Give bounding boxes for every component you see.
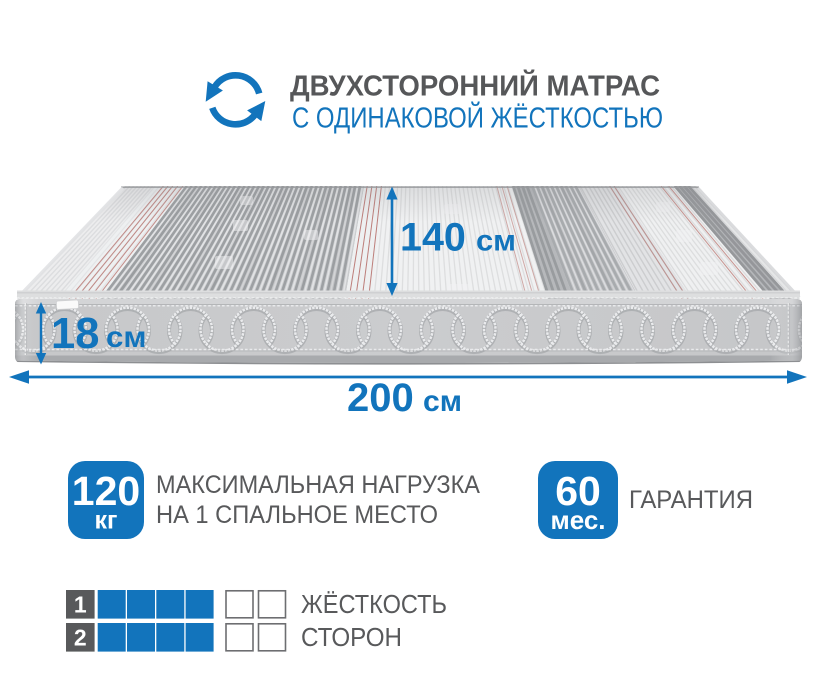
svg-text:140: 140: [400, 216, 466, 260]
svg-text:18: 18: [51, 310, 99, 358]
svg-text:см: см: [476, 225, 516, 258]
svg-text:НА 1 СПАЛЬНОЕ МЕСТО: НА 1 СПАЛЬНОЕ МЕСТО: [156, 501, 438, 529]
svg-text:СТОРОН: СТОРОН: [301, 622, 402, 652]
svg-text:1: 1: [74, 592, 87, 618]
svg-text:200: 200: [347, 376, 414, 420]
svg-text:мес.: мес.: [550, 505, 605, 535]
svg-text:ЖЁСТКОСТЬ: ЖЁСТКОСТЬ: [301, 589, 447, 619]
svg-text:ГАРАНТИЯ: ГАРАНТИЯ: [629, 486, 753, 514]
svg-text:ДВУХСТОРОННИЙ МАТРАС: ДВУХСТОРОННИЙ МАТРАС: [290, 69, 660, 103]
svg-text:см: см: [423, 385, 462, 418]
svg-text:С ОДИНАКОВОЙ ЖЁСТКОСТЬЮ: С ОДИНАКОВОЙ ЖЁСТКОСТЬЮ: [292, 103, 663, 135]
svg-text:МАКСИМАЛЬНАЯ НАГРУЗКА: МАКСИМАЛЬНАЯ НАГРУЗКА: [156, 471, 480, 499]
svg-text:см: см: [106, 321, 147, 354]
svg-text:кг: кг: [95, 507, 118, 535]
svg-text:2: 2: [74, 625, 87, 651]
